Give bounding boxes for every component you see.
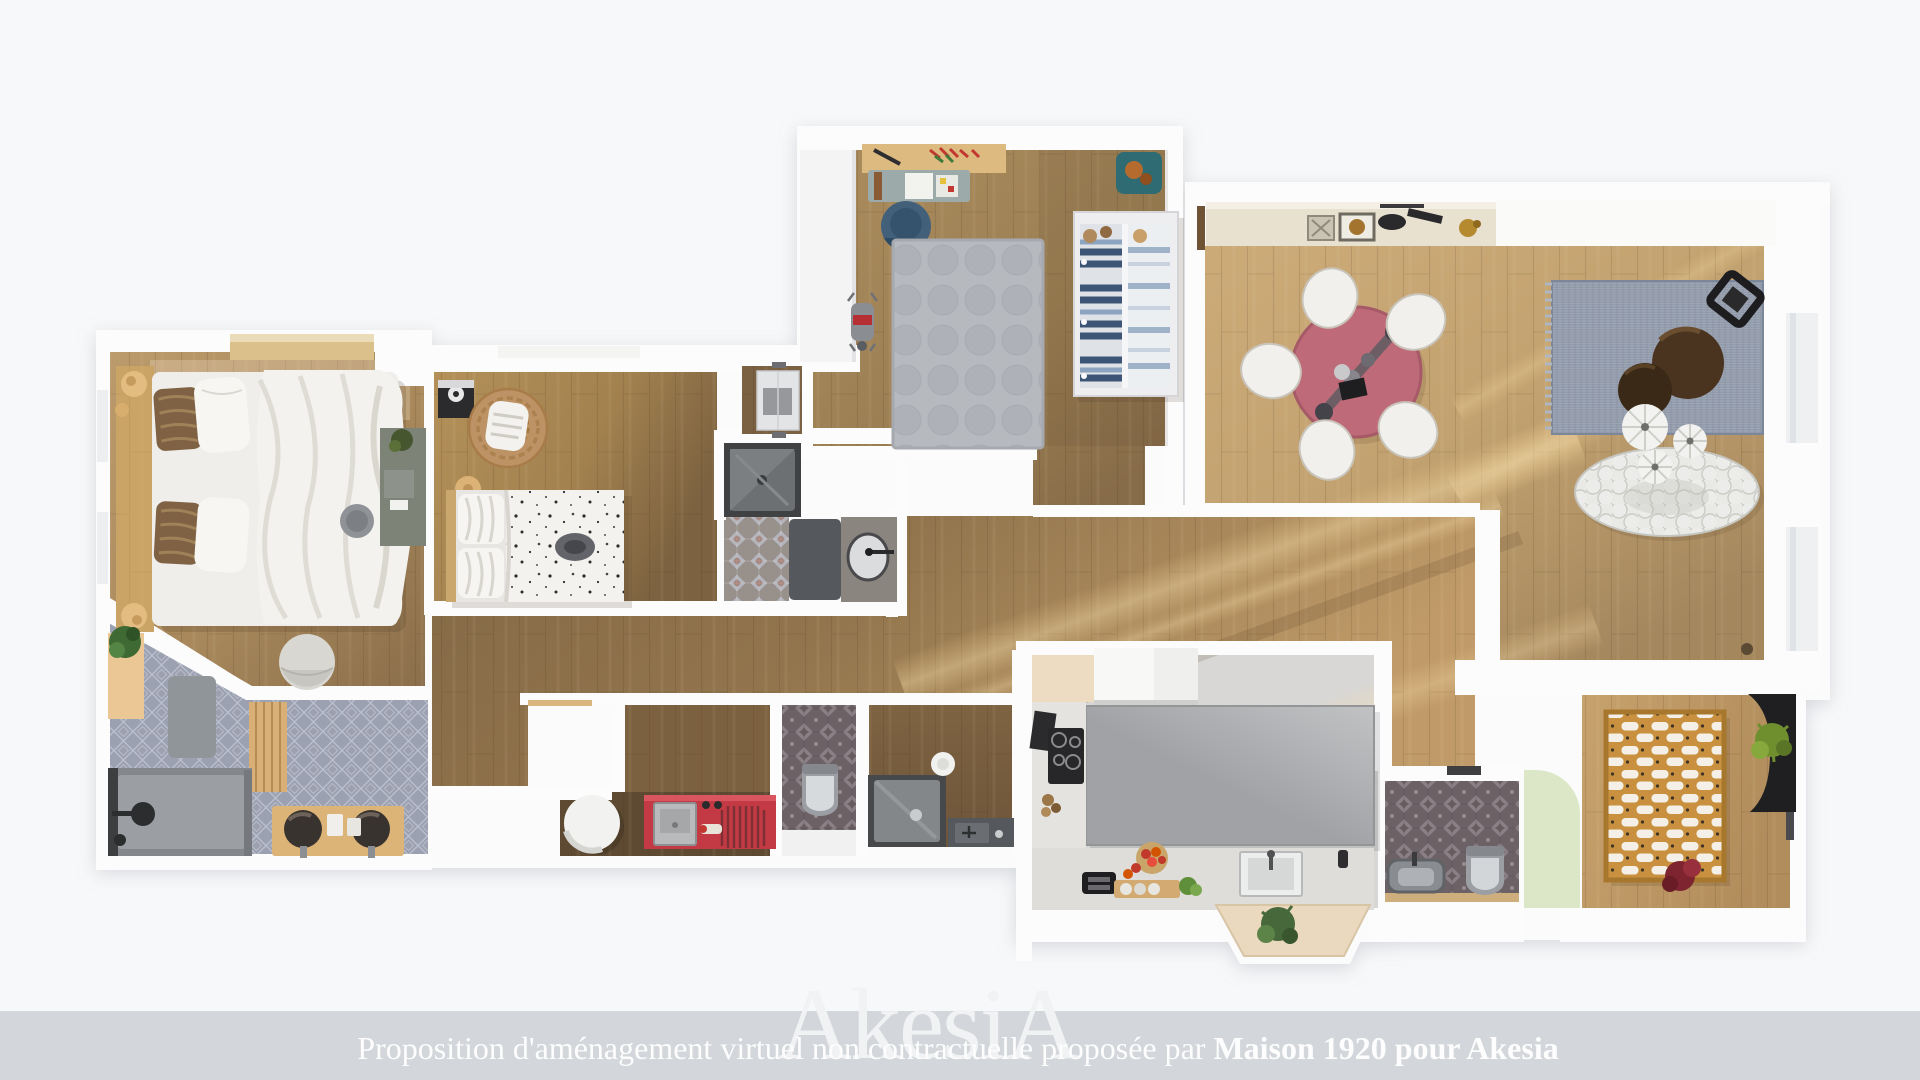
svg-text:Proposition d'aménagement virt: Proposition d'aménagement virtuel non co… [357, 1030, 1558, 1066]
